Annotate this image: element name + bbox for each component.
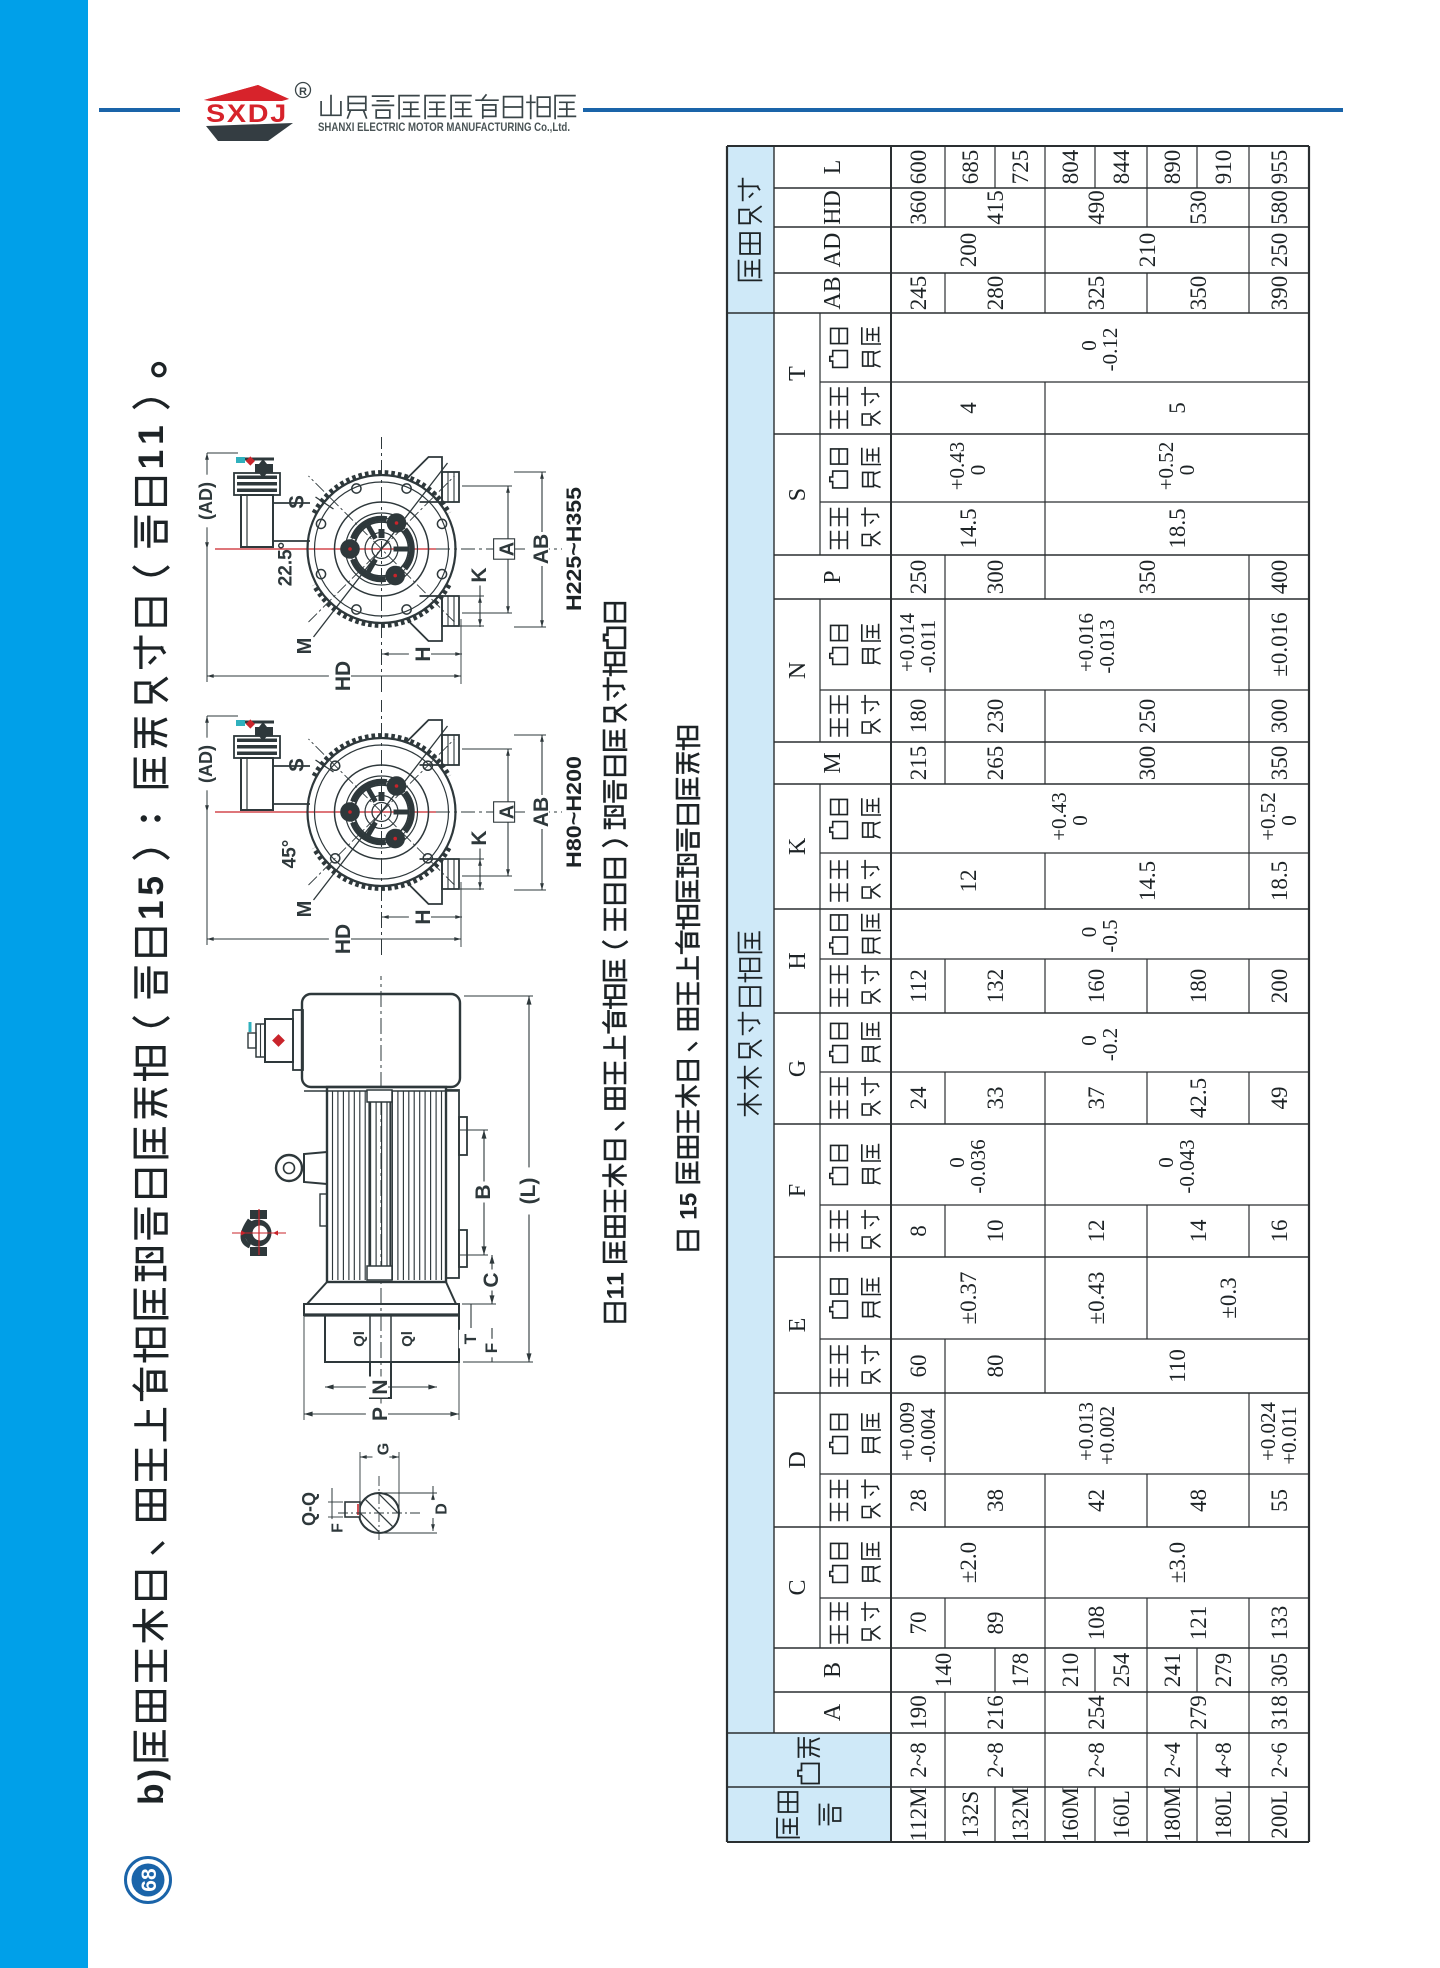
svg-text:K: K: [468, 830, 491, 845]
svg-text:200: 200: [1267, 969, 1292, 1004]
svg-text:Q-Q: Q-Q: [299, 1492, 319, 1526]
svg-text:250: 250: [1135, 699, 1160, 734]
svg-text:300: 300: [1135, 746, 1160, 781]
svg-text:112: 112: [906, 969, 931, 1003]
svg-text:F: F: [785, 1184, 811, 1197]
svg-text:S: S: [785, 488, 811, 501]
svg-text:K: K: [468, 567, 491, 582]
svg-text:T: T: [461, 1333, 480, 1344]
svg-text:2~8: 2~8: [1084, 1742, 1109, 1777]
svg-text:28: 28: [906, 1489, 931, 1512]
svg-text:241: 241: [1160, 1653, 1185, 1688]
svg-text:5: 5: [1165, 402, 1190, 414]
svg-text:18.5: 18.5: [1165, 508, 1190, 548]
svg-text:910: 910: [1211, 150, 1236, 185]
svg-text:180: 180: [1186, 969, 1211, 1004]
svg-text:-0.036: -0.036: [966, 1139, 990, 1193]
svg-text:+0.011: +0.011: [1277, 1406, 1301, 1464]
svg-text:C: C: [480, 1272, 503, 1287]
svg-text:10: 10: [983, 1220, 1008, 1243]
svg-text:580: 580: [1267, 190, 1292, 225]
svg-text:350: 350: [1186, 276, 1211, 311]
svg-text:14.5: 14.5: [1135, 861, 1160, 901]
svg-text:190: 190: [906, 1695, 931, 1730]
svg-text:42.5: 42.5: [1186, 1078, 1211, 1118]
svg-text:±0.016: ±0.016: [1267, 612, 1292, 676]
svg-text:H: H: [785, 952, 811, 969]
svg-text:55: 55: [1267, 1489, 1292, 1512]
svg-text:H80~H200: H80~H200: [563, 756, 586, 868]
svg-text:24: 24: [906, 1086, 931, 1110]
svg-text:305: 305: [1267, 1653, 1292, 1688]
svg-text:12: 12: [956, 870, 981, 893]
svg-text:200: 200: [956, 233, 981, 268]
svg-text:B: B: [472, 1184, 495, 1199]
svg-text:415: 415: [983, 190, 1008, 225]
svg-text:890: 890: [1160, 150, 1185, 185]
svg-text:4~8: 4~8: [1211, 1742, 1236, 1777]
svg-text:325: 325: [1084, 276, 1109, 311]
svg-text:600: 600: [906, 150, 931, 185]
svg-text:0: 0: [966, 465, 990, 476]
svg-text:T: T: [785, 366, 811, 381]
svg-text:1: 1: [132, 450, 171, 470]
svg-text:160L: 160L: [1109, 1790, 1134, 1839]
svg-text:180: 180: [906, 699, 931, 734]
svg-text:280: 280: [983, 276, 1008, 311]
svg-text:121: 121: [1186, 1606, 1211, 1641]
svg-text:1: 1: [603, 1272, 630, 1286]
svg-text:±0.3: ±0.3: [1216, 1277, 1241, 1318]
svg-text:+0.002: +0.002: [1095, 1406, 1119, 1465]
svg-text:(L): (L): [517, 1178, 540, 1205]
svg-text:5: 5: [676, 1193, 703, 1207]
svg-text:530: 530: [1186, 190, 1211, 225]
svg-text:200L: 200L: [1267, 1790, 1292, 1839]
svg-text:Ql: Ql: [351, 1331, 368, 1347]
svg-text:48: 48: [1186, 1489, 1211, 1512]
svg-text:300: 300: [983, 560, 1008, 595]
svg-text:F: F: [482, 1343, 501, 1353]
svg-text:B: B: [820, 1662, 846, 1678]
svg-text:0: 0: [1175, 465, 1199, 476]
svg-text:37: 37: [1084, 1087, 1109, 1110]
svg-text:1: 1: [603, 1286, 630, 1300]
svg-text:42: 42: [1084, 1489, 1109, 1512]
svg-text:210: 210: [1135, 233, 1160, 268]
svg-text:M: M: [294, 638, 316, 655]
svg-text:400: 400: [1267, 560, 1292, 595]
svg-text:-0.5: -0.5: [1098, 919, 1122, 952]
svg-text:1: 1: [132, 425, 171, 445]
svg-text:L: L: [820, 160, 846, 175]
svg-text:300: 300: [1267, 699, 1292, 734]
svg-text:2~8: 2~8: [983, 1742, 1008, 1777]
svg-text:M: M: [294, 901, 316, 918]
svg-text:89: 89: [983, 1612, 1008, 1635]
svg-text:250: 250: [906, 560, 931, 595]
svg-text:0: 0: [1277, 815, 1301, 826]
svg-text:16: 16: [1267, 1220, 1292, 1243]
svg-text:350: 350: [1135, 560, 1160, 595]
svg-text:D: D: [785, 1451, 811, 1468]
svg-text:AD: AD: [820, 233, 846, 268]
svg-text:R: R: [299, 86, 307, 98]
svg-text:HD: HD: [332, 924, 355, 954]
svg-text:279: 279: [1186, 1695, 1211, 1730]
svg-text:HD: HD: [820, 190, 846, 225]
svg-text:HD: HD: [332, 661, 355, 691]
svg-text:2~4: 2~4: [1160, 1742, 1185, 1778]
svg-text:M: M: [820, 752, 846, 773]
svg-text:14.5: 14.5: [956, 508, 981, 548]
svg-text:S: S: [286, 758, 309, 772]
svg-text:F: F: [330, 1523, 347, 1533]
svg-text:33: 33: [983, 1087, 1008, 1110]
svg-text:N: N: [785, 662, 811, 679]
svg-text:12: 12: [1084, 1220, 1109, 1243]
svg-text:110: 110: [1165, 1349, 1190, 1383]
svg-text:G: G: [785, 1060, 811, 1077]
svg-text:70: 70: [906, 1612, 931, 1635]
svg-text:245: 245: [906, 276, 931, 311]
svg-text:160M: 160M: [1058, 1787, 1083, 1842]
svg-text:254: 254: [1109, 1652, 1134, 1687]
svg-text:133: 133: [1267, 1606, 1292, 1641]
svg-text:18.5: 18.5: [1267, 861, 1292, 901]
svg-text:±0.37: ±0.37: [956, 1272, 981, 1325]
svg-text:C: C: [785, 1579, 811, 1595]
svg-text:A: A: [820, 1703, 846, 1721]
svg-text:955: 955: [1267, 150, 1292, 185]
svg-text:A: A: [497, 805, 519, 819]
svg-text:14: 14: [1186, 1219, 1211, 1243]
svg-text:(AD): (AD): [196, 745, 216, 783]
svg-text:804: 804: [1058, 149, 1083, 184]
svg-text:AB: AB: [530, 534, 553, 564]
svg-text:-0.12: -0.12: [1098, 328, 1122, 372]
svg-text:8: 8: [906, 1225, 931, 1237]
svg-text:215: 215: [906, 746, 931, 781]
svg-text:279: 279: [1211, 1653, 1236, 1688]
svg-text:5: 5: [132, 876, 171, 896]
svg-text:80: 80: [983, 1355, 1008, 1378]
svg-text:H: H: [412, 646, 435, 661]
svg-text:490: 490: [1084, 190, 1109, 225]
svg-text:): ): [132, 1769, 171, 1781]
svg-text:2~6: 2~6: [1267, 1742, 1292, 1777]
svg-text:H: H: [412, 909, 435, 924]
svg-text:22.5°: 22.5°: [276, 542, 297, 587]
svg-text:210: 210: [1058, 1653, 1083, 1688]
svg-text:230: 230: [983, 699, 1008, 734]
svg-text:360: 360: [906, 190, 931, 225]
svg-text:685: 685: [958, 150, 983, 185]
svg-text:318: 318: [1267, 1695, 1292, 1730]
svg-text:132M: 132M: [1008, 1787, 1033, 1842]
svg-text:AB: AB: [820, 276, 846, 309]
svg-text:250: 250: [1267, 233, 1292, 268]
svg-text:1: 1: [676, 1206, 703, 1220]
svg-text:±2.0: ±2.0: [956, 1542, 981, 1583]
svg-text:-0.043: -0.043: [1175, 1139, 1199, 1193]
svg-text:350: 350: [1267, 746, 1292, 781]
svg-text:132S: 132S: [958, 1791, 983, 1838]
svg-text:-0.004: -0.004: [916, 1408, 940, 1463]
svg-text:P: P: [820, 570, 846, 583]
svg-text:SHANXI ELECTRIC MOTOR MANUFACT: SHANXI ELECTRIC MOTOR MANUFACTURING Co.,…: [318, 120, 570, 134]
svg-text:1: 1: [132, 900, 171, 920]
svg-text:-0.011: -0.011: [916, 620, 940, 673]
svg-text:390: 390: [1267, 276, 1292, 311]
svg-text:60: 60: [906, 1355, 931, 1378]
svg-text:180L: 180L: [1211, 1790, 1236, 1839]
svg-text:S: S: [286, 495, 309, 509]
svg-text:45°: 45°: [280, 840, 301, 869]
svg-text:108: 108: [1084, 1606, 1109, 1641]
svg-text:49: 49: [1267, 1087, 1292, 1110]
svg-text:180M: 180M: [1160, 1787, 1185, 1842]
svg-text:E: E: [785, 1318, 811, 1333]
svg-text:-0.013: -0.013: [1095, 619, 1119, 673]
svg-text:2~8: 2~8: [906, 1742, 931, 1777]
svg-text:132: 132: [983, 969, 1008, 1004]
svg-text:±0.43: ±0.43: [1084, 1272, 1109, 1325]
svg-text:A: A: [497, 542, 519, 556]
svg-text:265: 265: [983, 746, 1008, 781]
svg-text:N: N: [369, 1379, 392, 1394]
svg-text:K: K: [785, 837, 811, 855]
svg-text:Ql: Ql: [399, 1331, 416, 1347]
svg-text:160: 160: [1084, 969, 1109, 1004]
svg-text:AB: AB: [530, 797, 553, 827]
svg-text:H225~H355: H225~H355: [563, 487, 586, 611]
svg-text:G: G: [376, 1443, 393, 1455]
svg-text:D: D: [434, 1503, 451, 1515]
svg-text:68: 68: [138, 1868, 161, 1892]
svg-text:38: 38: [983, 1489, 1008, 1512]
svg-text:844: 844: [1109, 149, 1134, 184]
svg-text:4: 4: [956, 402, 981, 414]
svg-text:112M: 112M: [906, 1787, 931, 1841]
svg-text:(AD): (AD): [196, 482, 216, 520]
svg-text:-0.2: -0.2: [1098, 1028, 1122, 1061]
svg-text:0: 0: [1068, 815, 1092, 826]
svg-text:178: 178: [1008, 1653, 1033, 1688]
svg-text:P: P: [369, 1407, 392, 1421]
svg-text:216: 216: [983, 1695, 1008, 1730]
svg-text:b: b: [132, 1783, 171, 1805]
svg-text:725: 725: [1008, 150, 1033, 185]
svg-text:140: 140: [931, 1653, 956, 1688]
svg-text:254: 254: [1084, 1695, 1109, 1730]
svg-text:±3.0: ±3.0: [1165, 1542, 1190, 1583]
